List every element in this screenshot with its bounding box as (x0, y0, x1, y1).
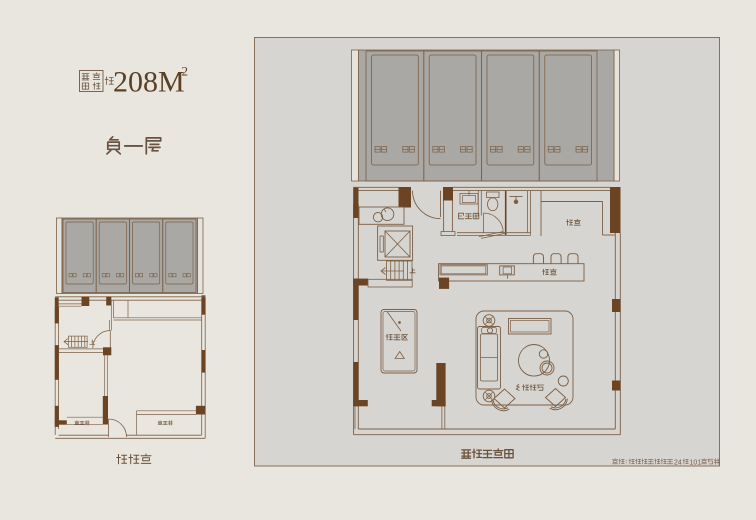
svg-text:24: 24 (674, 460, 682, 467)
svg-text:101: 101 (690, 460, 702, 467)
svg-text:2: 2 (182, 64, 189, 79)
svg-text:208M: 208M (113, 66, 185, 99)
